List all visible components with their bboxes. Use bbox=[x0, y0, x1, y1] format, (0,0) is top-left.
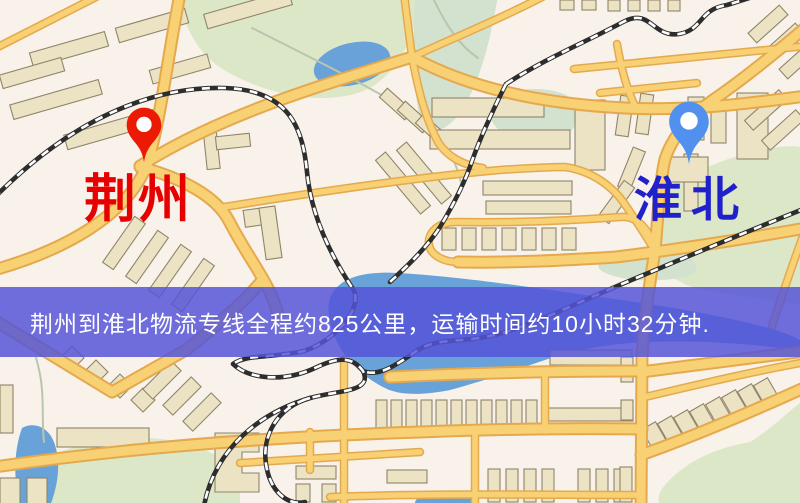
destination-pin-icon[interactable] bbox=[665, 99, 713, 168]
route-info-text: 荆州到淮北物流专线全程约825公里，运输时间约10小时32分钟. bbox=[0, 305, 710, 339]
route-info-banner: 荆州到淮北物流专线全程约825公里，运输时间约10小时32分钟. bbox=[0, 287, 800, 357]
origin-pin-icon[interactable] bbox=[123, 102, 165, 169]
map[interactable]: 荆州 淮北 荆州到淮北物流专线全程约825公里，运输时间约10小时32分钟. bbox=[0, 0, 800, 503]
map-canvas bbox=[0, 0, 800, 503]
destination-label: 淮北 bbox=[634, 177, 748, 225]
origin-label: 荆州 bbox=[84, 174, 192, 226]
